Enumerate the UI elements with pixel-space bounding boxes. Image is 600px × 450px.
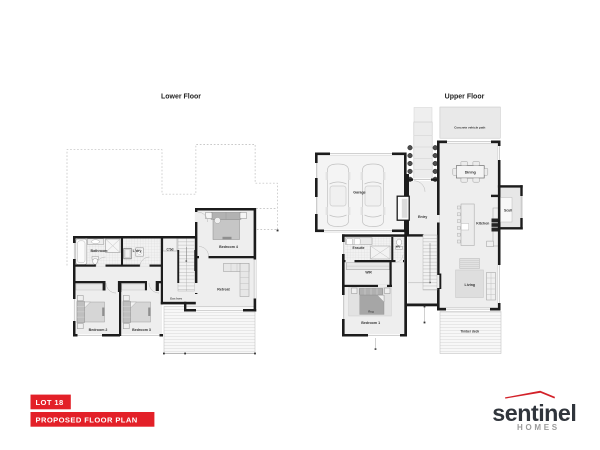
svg-text:Living: Living — [465, 283, 476, 287]
svg-text:Bathroom: Bathroom — [91, 249, 108, 253]
svg-text:Entry: Entry — [418, 215, 427, 219]
svg-text:Kitchen: Kitchen — [476, 221, 489, 225]
svg-text:Gas hws: Gas hws — [170, 297, 183, 301]
svg-text:HOMES: HOMES — [517, 423, 560, 432]
svg-text:Bedroom 1: Bedroom 1 — [361, 321, 380, 325]
svg-text:Rug: Rug — [368, 310, 374, 314]
svg-text:Retreat: Retreat — [217, 288, 230, 292]
svg-text:C'bd: C'bd — [167, 248, 174, 252]
svg-text:Scull: Scull — [504, 208, 512, 212]
svg-text:PROPOSED FLOOR PLAN: PROPOSED FLOOR PLAN — [36, 415, 138, 424]
svg-text:Garage: Garage — [353, 191, 365, 195]
svg-text:Ensuite: Ensuite — [353, 246, 365, 250]
svg-text:WIR: WIR — [365, 271, 372, 275]
svg-text:Upper Floor: Upper Floor — [445, 94, 485, 101]
svg-text:Concrete vehicle path: Concrete vehicle path — [454, 125, 485, 129]
svg-text:Bedroom 3: Bedroom 3 — [132, 328, 151, 332]
svg-text:Dining: Dining — [465, 170, 476, 174]
svg-text:Lower Floor: Lower Floor — [161, 94, 201, 101]
svg-text:LOT 18: LOT 18 — [36, 398, 64, 407]
svg-text:Bedroom 2: Bedroom 2 — [89, 328, 108, 332]
svg-text:Wc: Wc — [396, 245, 401, 249]
svg-text:Bedroom 4: Bedroom 4 — [219, 245, 238, 249]
svg-text:sentinel: sentinel — [492, 400, 576, 426]
svg-text:Timber deck: Timber deck — [460, 330, 479, 334]
svg-text:L'dry: L'dry — [133, 249, 142, 253]
